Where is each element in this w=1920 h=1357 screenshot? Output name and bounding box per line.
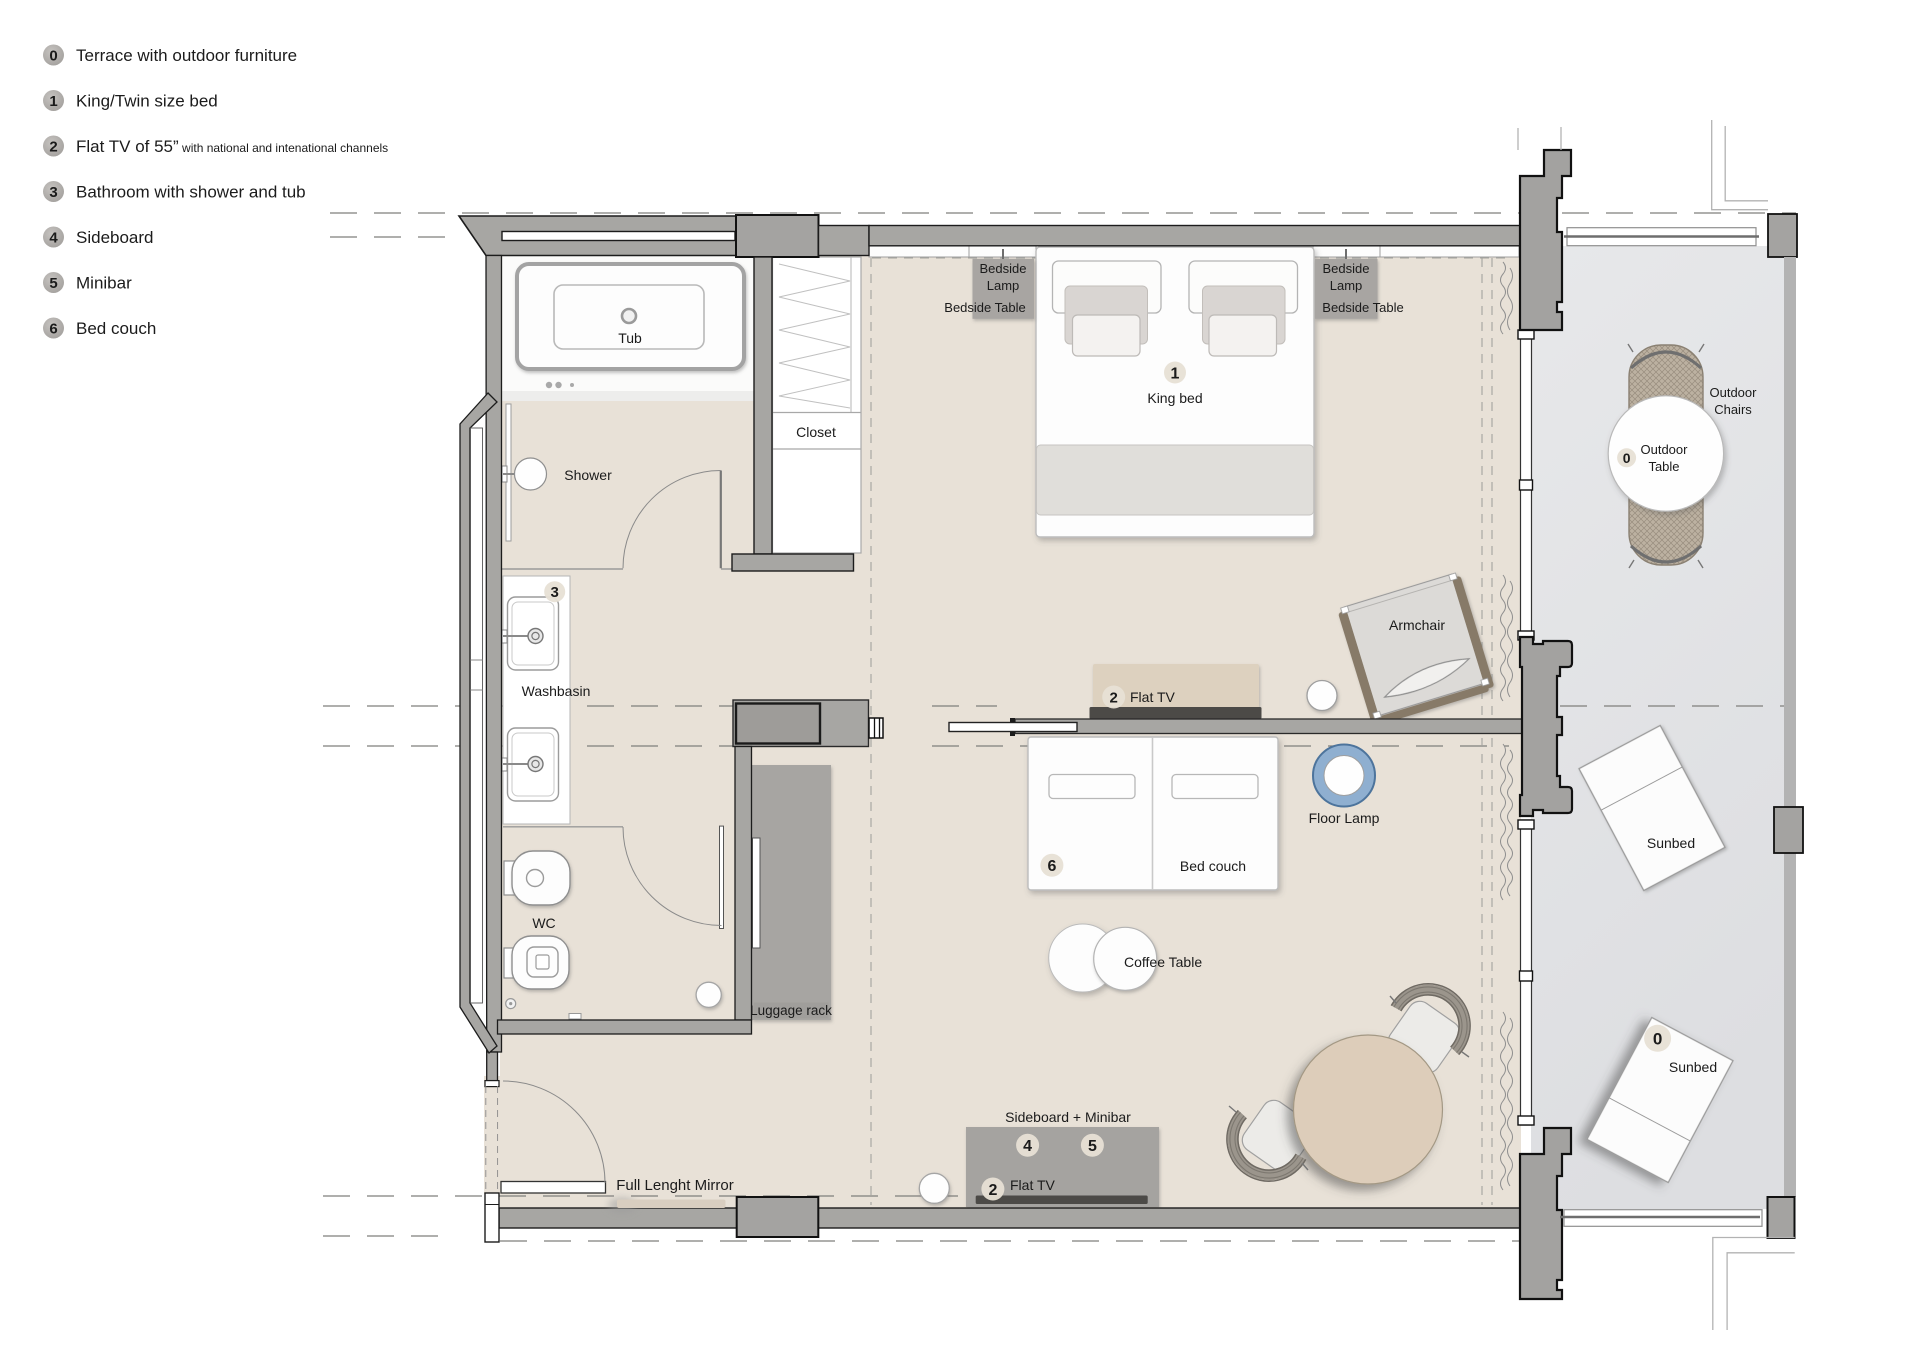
- svg-text:Floor Lamp: Floor Lamp: [1309, 810, 1380, 826]
- svg-text:Armchair: Armchair: [1389, 617, 1445, 633]
- svg-text:Bedside: Bedside: [980, 261, 1027, 276]
- svg-text:Lamp: Lamp: [1330, 278, 1363, 293]
- svg-text:WC: WC: [532, 915, 555, 931]
- svg-text:Flat TV of 55” with national a: Flat TV of 55” with national and intenat…: [76, 137, 388, 156]
- svg-text:Bed couch: Bed couch: [76, 319, 156, 338]
- svg-text:4: 4: [1023, 1138, 1032, 1155]
- svg-text:Outdoor: Outdoor: [1641, 442, 1689, 457]
- svg-text:0: 0: [49, 48, 57, 65]
- svg-text:Bedside Table: Bedside Table: [944, 300, 1025, 315]
- svg-text:Bed couch: Bed couch: [1180, 858, 1246, 874]
- svg-text:5: 5: [49, 275, 57, 292]
- svg-text:Washbasin: Washbasin: [522, 683, 591, 699]
- svg-text:Sideboard + Minibar: Sideboard + Minibar: [1005, 1109, 1131, 1125]
- svg-text:Closet: Closet: [796, 424, 836, 440]
- svg-text:1: 1: [49, 93, 57, 110]
- svg-text:Flat TV: Flat TV: [1010, 1177, 1056, 1193]
- svg-text:Luggage rack: Luggage rack: [750, 1003, 832, 1018]
- svg-text:5: 5: [1088, 1138, 1097, 1155]
- svg-text:Lamp: Lamp: [987, 278, 1020, 293]
- svg-text:3: 3: [551, 584, 559, 601]
- svg-text:King bed: King bed: [1147, 390, 1202, 406]
- svg-text:2: 2: [49, 139, 57, 156]
- svg-text:4: 4: [49, 230, 58, 247]
- svg-text:6: 6: [49, 321, 57, 338]
- svg-text:Chairs: Chairs: [1714, 402, 1752, 417]
- svg-text:0: 0: [1653, 1029, 1662, 1048]
- svg-text:Tub: Tub: [618, 330, 642, 346]
- svg-text:Sunbed: Sunbed: [1647, 835, 1695, 851]
- svg-text:0: 0: [1623, 450, 1631, 466]
- svg-text:Coffee Table: Coffee Table: [1124, 954, 1202, 970]
- svg-text:Minibar: Minibar: [76, 274, 132, 293]
- svg-text:Outdoor: Outdoor: [1710, 385, 1758, 400]
- svg-text:Terrace with outdoor furniture: Terrace with outdoor furniture: [76, 46, 297, 65]
- svg-text:Bedside: Bedside: [1323, 261, 1370, 276]
- svg-text:2: 2: [988, 1182, 997, 1199]
- svg-text:Sideboard: Sideboard: [76, 228, 154, 247]
- svg-text:Table: Table: [1648, 459, 1679, 474]
- svg-text:King/Twin size bed: King/Twin size bed: [76, 92, 218, 111]
- svg-text:3: 3: [49, 184, 57, 201]
- svg-text:Shower: Shower: [564, 467, 612, 483]
- svg-text:2: 2: [1110, 689, 1118, 706]
- svg-text:6: 6: [1047, 858, 1056, 875]
- svg-text:Sunbed: Sunbed: [1669, 1059, 1717, 1075]
- svg-text:Flat TV: Flat TV: [1130, 689, 1176, 705]
- svg-text:1: 1: [1171, 365, 1180, 382]
- svg-text:Bedside Table: Bedside Table: [1322, 300, 1403, 315]
- svg-text:Full Lenght Mirror: Full Lenght Mirror: [616, 1177, 734, 1194]
- svg-text:Bathroom with shower and tub: Bathroom with shower and tub: [76, 183, 306, 202]
